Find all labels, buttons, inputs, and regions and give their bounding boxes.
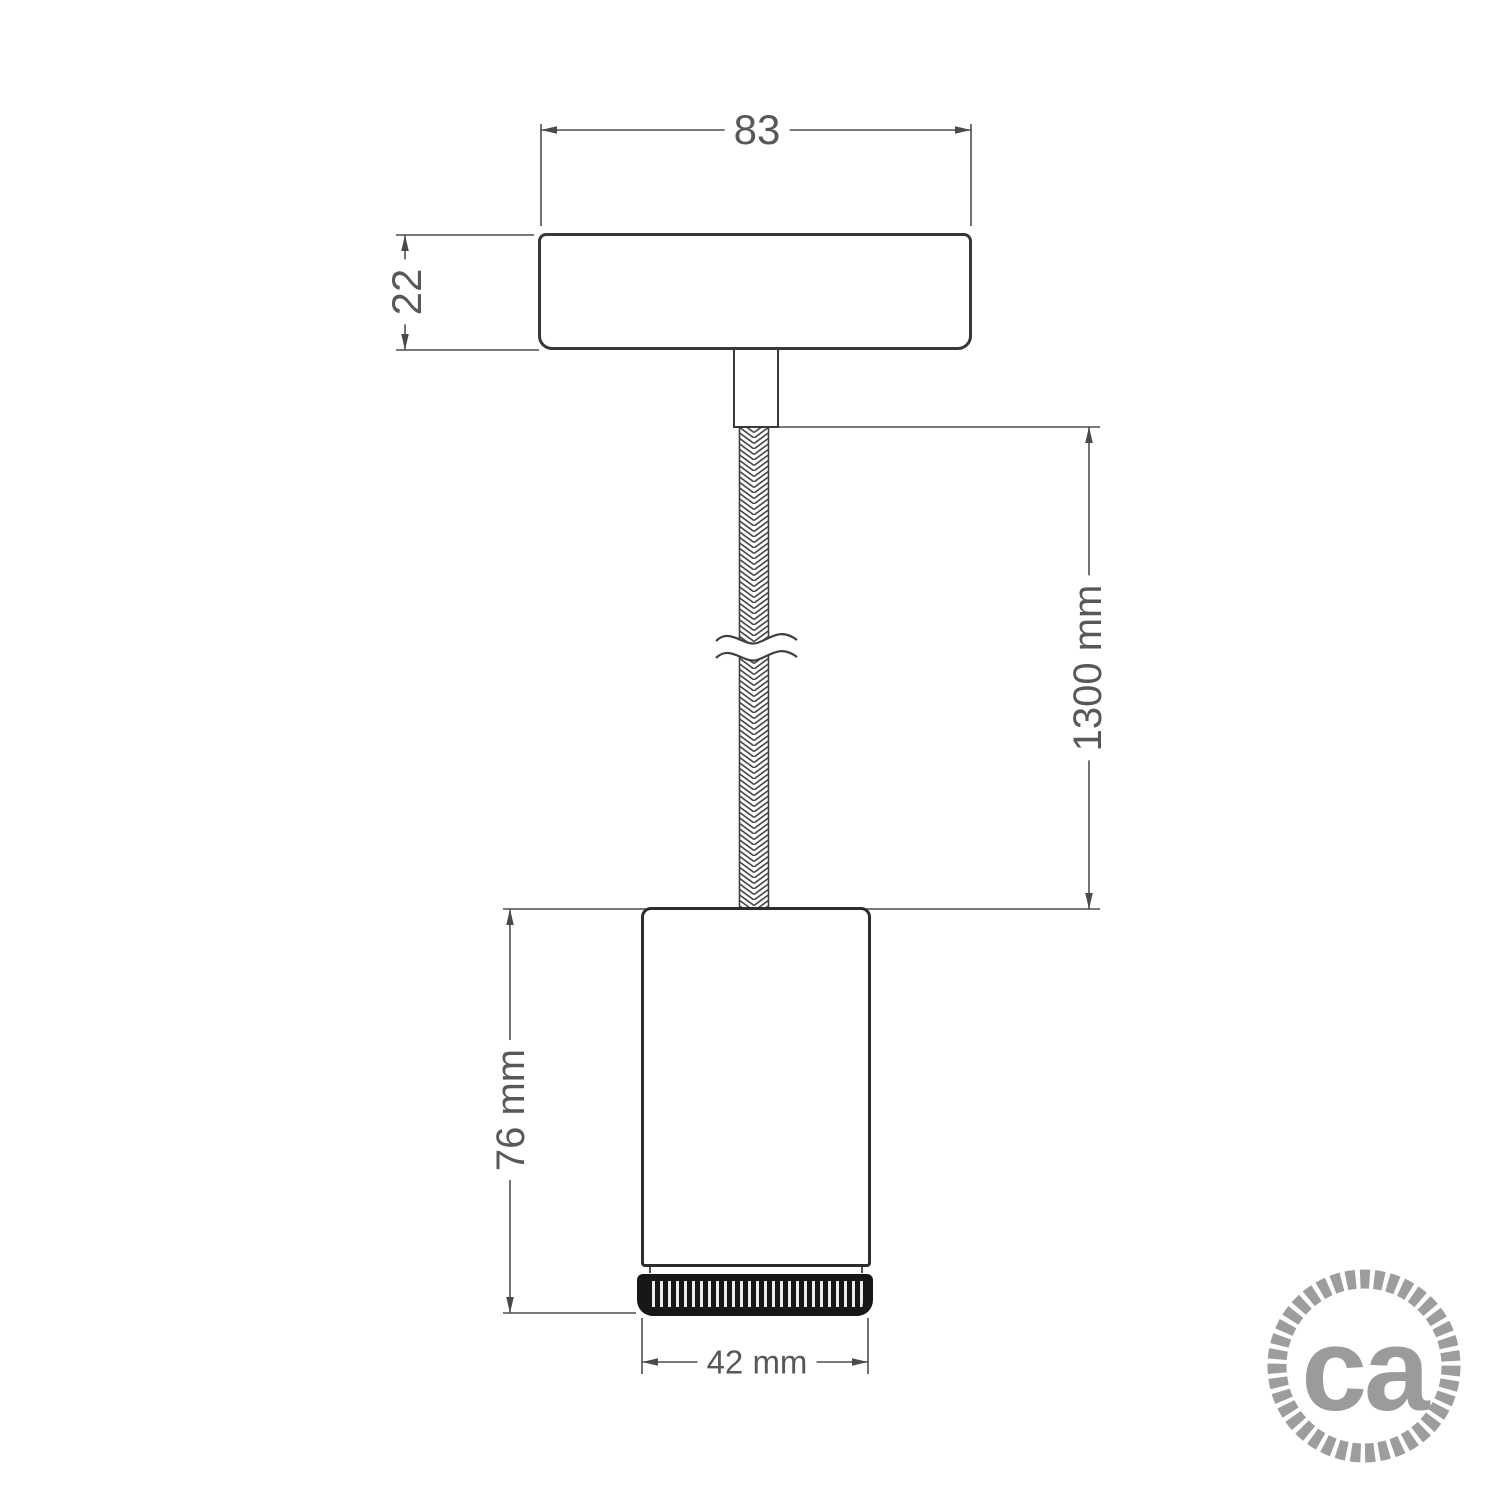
dimension-label-canopy-width: 83 (725, 109, 790, 151)
dim-line-cable-length (779, 427, 1100, 909)
dimension-label-cable-length: 1300 mm (1068, 576, 1108, 761)
dimension-label-body-diameter: 42 mm (698, 1346, 817, 1379)
dimension-label-body-height: 76 mm (491, 1040, 531, 1180)
technical-drawing: 83 22 1300 mm 76 mm 42 mm ca (0, 0, 1500, 1500)
spotlight-trim-ring (637, 1274, 873, 1316)
body-ring-step (650, 1266, 862, 1273)
cable-clamp (733, 350, 779, 428)
logo-text: ca (1301, 1304, 1431, 1436)
spotlight-body (641, 907, 871, 1267)
ceiling-rose (538, 233, 972, 350)
brand-logo-icon: ca (1262, 1264, 1466, 1468)
cable-break-symbol (705, 615, 810, 677)
dimension-label-canopy-height: 22 (386, 260, 428, 325)
